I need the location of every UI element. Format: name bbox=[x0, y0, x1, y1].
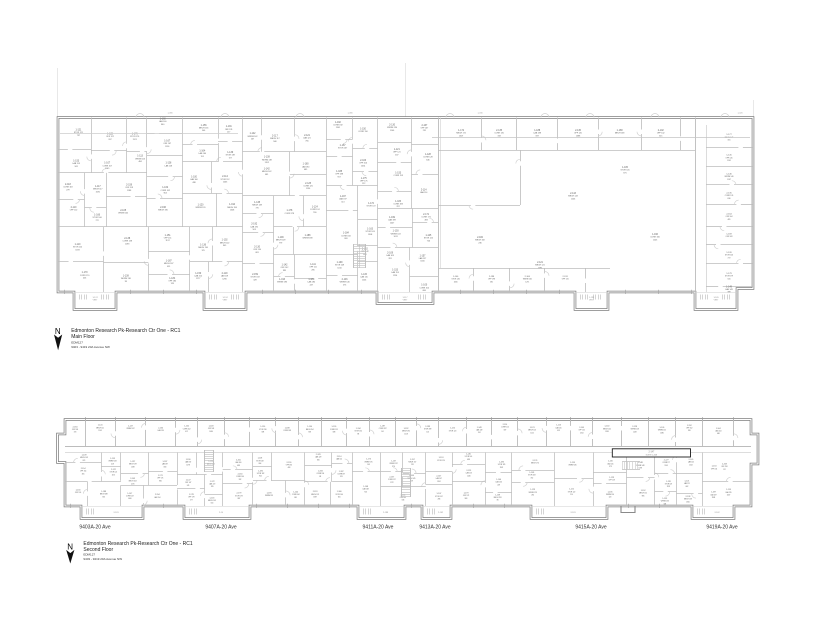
svg-text:1188: 1188 bbox=[712, 497, 716, 499]
svg-text:1388: 1388 bbox=[576, 135, 580, 137]
svg-text:1188: 1188 bbox=[127, 190, 131, 192]
svg-text:CORR 157: CORR 157 bbox=[388, 479, 396, 481]
svg-text:LAB 119: LAB 119 bbox=[221, 275, 228, 278]
svg-text:1-123: 1-123 bbox=[530, 427, 535, 429]
svg-text:2-179: 2-179 bbox=[237, 493, 242, 495]
svg-text:1-187: 1-187 bbox=[711, 492, 716, 494]
svg-text:688: 688 bbox=[237, 465, 240, 467]
svg-text:1-134: 1-134 bbox=[356, 428, 361, 430]
svg-text:727: 727 bbox=[229, 158, 232, 160]
svg-text:1-137: 1-137 bbox=[391, 461, 396, 463]
svg-text:CORR 197: CORR 197 bbox=[337, 473, 345, 475]
svg-text:1007: 1007 bbox=[727, 495, 731, 497]
svg-text:481: 481 bbox=[728, 219, 731, 221]
svg-text:MECH 121: MECH 121 bbox=[535, 265, 544, 267]
svg-text:294: 294 bbox=[531, 495, 534, 497]
svg-text:1202: 1202 bbox=[265, 162, 269, 164]
svg-text:2-162: 2-162 bbox=[714, 512, 720, 514]
svg-text:285: 285 bbox=[311, 270, 314, 272]
svg-text:1192: 1192 bbox=[667, 486, 671, 488]
svg-text:LAB 100: LAB 100 bbox=[190, 178, 197, 181]
svg-text:2-181: 2-181 bbox=[113, 512, 119, 514]
svg-text:MECH 187: MECH 187 bbox=[164, 263, 173, 265]
svg-text:OFF 198: OFF 198 bbox=[488, 279, 495, 281]
svg-text:MECH 141: MECH 141 bbox=[96, 427, 104, 429]
svg-text:STOR 122: STOR 122 bbox=[110, 472, 118, 474]
svg-text:1-118: 1-118 bbox=[258, 458, 263, 460]
svg-text:1-140: 1-140 bbox=[466, 454, 471, 456]
svg-text:116: 116 bbox=[426, 431, 429, 433]
svg-text:568: 568 bbox=[273, 141, 276, 143]
svg-text:STOR 130: STOR 130 bbox=[259, 429, 267, 431]
svg-text:662: 662 bbox=[686, 486, 689, 488]
svg-text:EDM127: EDM127 bbox=[71, 341, 83, 345]
svg-text:88: 88 bbox=[357, 433, 359, 435]
svg-text:MECH 138: MECH 138 bbox=[252, 205, 261, 207]
svg-text:363: 363 bbox=[344, 238, 347, 240]
svg-text:646: 646 bbox=[426, 159, 429, 161]
svg-text:1-140: 1-140 bbox=[605, 426, 610, 428]
svg-text:STOR 163: STOR 163 bbox=[366, 231, 375, 233]
svg-text:1-124: 1-124 bbox=[439, 457, 444, 459]
svg-text:780: 780 bbox=[313, 212, 316, 214]
svg-text:453: 453 bbox=[557, 430, 560, 432]
svg-text:913: 913 bbox=[102, 496, 105, 498]
svg-text:MECH 182: MECH 182 bbox=[475, 240, 484, 242]
svg-text:LAB 115: LAB 115 bbox=[360, 276, 367, 279]
svg-text:690: 690 bbox=[164, 466, 167, 468]
svg-text:1-190: 1-190 bbox=[186, 459, 191, 461]
svg-text:1-160: 1-160 bbox=[337, 491, 342, 493]
svg-text:942: 942 bbox=[259, 476, 262, 478]
svg-text:1172: 1172 bbox=[112, 474, 116, 476]
svg-text:141: 141 bbox=[381, 431, 384, 433]
svg-text:1166: 1166 bbox=[420, 261, 424, 263]
svg-text:2-147: 2-147 bbox=[128, 425, 133, 427]
svg-text:STOR 109: STOR 109 bbox=[528, 475, 536, 477]
svg-text:1-147: 1-147 bbox=[186, 480, 191, 482]
svg-text:1-193: 1-193 bbox=[267, 492, 272, 494]
svg-text:CORR 194: CORR 194 bbox=[316, 473, 324, 475]
svg-text:STOR 167: STOR 167 bbox=[338, 148, 347, 150]
svg-text:1-141: 1-141 bbox=[98, 425, 103, 427]
svg-text:1-179: 1-179 bbox=[189, 494, 194, 496]
svg-text:2-147: 2-147 bbox=[648, 451, 655, 453]
svg-text:9413A-20 Ave: 9413A-20 Ave bbox=[419, 524, 451, 530]
svg-text:OFF 145: OFF 145 bbox=[726, 157, 733, 159]
svg-text:MECH 159: MECH 159 bbox=[494, 497, 502, 499]
svg-text:OFF 190: OFF 190 bbox=[286, 464, 292, 466]
svg-text:1-135: 1-135 bbox=[570, 462, 575, 464]
svg-text:CORR 153: CORR 153 bbox=[393, 175, 402, 177]
svg-text:CORR 192: CORR 192 bbox=[333, 124, 342, 126]
svg-text:1063: 1063 bbox=[223, 182, 227, 184]
svg-text:995: 995 bbox=[283, 270, 286, 272]
svg-text:MECH 157: MECH 157 bbox=[409, 461, 417, 463]
svg-text:1-197: 1-197 bbox=[339, 471, 344, 473]
svg-text:2-130: 2-130 bbox=[158, 427, 163, 429]
svg-text:1-106: 1-106 bbox=[496, 479, 501, 481]
svg-text:2-162: 2-162 bbox=[438, 512, 444, 514]
svg-text:LAB 180: LAB 180 bbox=[308, 281, 315, 284]
svg-text:OFF 147: OFF 147 bbox=[185, 482, 191, 484]
svg-text:2-122: 2-122 bbox=[111, 469, 116, 471]
svg-text:LAB 180: LAB 180 bbox=[302, 165, 309, 168]
svg-text:OFF 106: OFF 106 bbox=[359, 163, 367, 165]
svg-text:917: 917 bbox=[337, 177, 340, 179]
svg-text:LAB 109: LAB 109 bbox=[386, 254, 393, 257]
svg-text:373: 373 bbox=[609, 466, 612, 468]
svg-text:EDM127: EDM127 bbox=[83, 552, 95, 556]
svg-text:2-145: 2-145 bbox=[689, 459, 694, 461]
svg-text:926: 926 bbox=[317, 460, 320, 462]
svg-text:STOR 176: STOR 176 bbox=[130, 136, 139, 138]
svg-text:1349: 1349 bbox=[605, 431, 609, 433]
svg-text:OFF 121: OFF 121 bbox=[393, 152, 401, 154]
svg-text:1300: 1300 bbox=[686, 501, 690, 503]
svg-text:2-100: 2-100 bbox=[236, 460, 241, 462]
svg-text:976: 976 bbox=[392, 466, 395, 468]
svg-text:1137: 1137 bbox=[166, 240, 170, 242]
svg-text:772: 772 bbox=[95, 220, 98, 222]
svg-text:MECH 117: MECH 117 bbox=[93, 189, 102, 191]
svg-text:OFF 167: OFF 167 bbox=[421, 127, 429, 129]
svg-text:318: 318 bbox=[497, 135, 500, 137]
svg-text:OFF 167: OFF 167 bbox=[163, 143, 171, 145]
svg-text:CORR 124: CORR 124 bbox=[310, 209, 320, 211]
svg-text:315: 315 bbox=[659, 135, 662, 137]
svg-text:1166: 1166 bbox=[454, 281, 458, 283]
svg-text:1290: 1290 bbox=[222, 278, 226, 280]
svg-text:LAB 121: LAB 121 bbox=[303, 137, 310, 140]
svg-text:CORR 114: CORR 114 bbox=[501, 427, 509, 429]
svg-text:1-185: 1-185 bbox=[499, 462, 504, 464]
svg-text:1198: 1198 bbox=[131, 466, 135, 468]
svg-text:MECH 123: MECH 123 bbox=[528, 430, 536, 432]
svg-text:681: 681 bbox=[255, 252, 258, 254]
svg-text:LAB 199: LAB 199 bbox=[388, 219, 395, 222]
svg-text:WKRM 120: WKRM 120 bbox=[196, 207, 206, 209]
svg-text:OFF 110: OFF 110 bbox=[70, 209, 78, 211]
svg-text:1011: 1011 bbox=[394, 236, 398, 238]
svg-text:1-133: 1-133 bbox=[110, 458, 115, 460]
svg-text:2-105: 2-105 bbox=[579, 427, 584, 429]
svg-text:103: 103 bbox=[367, 464, 370, 466]
svg-text:1091: 1091 bbox=[96, 192, 100, 194]
svg-text:1-130: 1-130 bbox=[260, 426, 265, 428]
svg-text:1145: 1145 bbox=[98, 430, 102, 432]
svg-text:585: 585 bbox=[211, 486, 214, 488]
svg-text:CORR 138: CORR 138 bbox=[122, 241, 131, 243]
svg-text:503: 503 bbox=[253, 229, 256, 231]
svg-text:OFF 129: OFF 129 bbox=[609, 480, 615, 482]
svg-text:MECH 117: MECH 117 bbox=[270, 138, 279, 140]
svg-text:1-187: 1-187 bbox=[380, 426, 385, 428]
svg-text:MECH 138: MECH 138 bbox=[684, 499, 692, 501]
svg-text:498: 498 bbox=[192, 182, 195, 184]
svg-text:1-109: 1-109 bbox=[529, 472, 534, 474]
svg-text:WKRM 105: WKRM 105 bbox=[658, 430, 666, 432]
svg-text:STOR 107: STOR 107 bbox=[435, 496, 443, 498]
svg-text:536: 536 bbox=[402, 500, 405, 502]
svg-text:651: 651 bbox=[167, 266, 170, 268]
svg-text:LAB 192: LAB 192 bbox=[250, 225, 257, 228]
svg-text:WKRM 146: WKRM 146 bbox=[725, 176, 734, 178]
svg-text:1206: 1206 bbox=[571, 198, 575, 200]
svg-text:291: 291 bbox=[411, 464, 414, 466]
svg-text:CORR 178: CORR 178 bbox=[285, 213, 294, 215]
svg-text:STOR 159: STOR 159 bbox=[250, 277, 259, 279]
svg-text:770: 770 bbox=[255, 207, 258, 209]
svg-text:281: 281 bbox=[388, 258, 391, 260]
svg-text:STOR 185: STOR 185 bbox=[498, 464, 506, 466]
svg-text:LAB 164: LAB 164 bbox=[199, 152, 207, 155]
svg-text:2-190: 2-190 bbox=[287, 462, 292, 464]
svg-text:CORR 170: CORR 170 bbox=[80, 275, 89, 277]
svg-text:N: N bbox=[67, 542, 73, 551]
svg-text:MECH 194: MECH 194 bbox=[227, 207, 237, 209]
svg-text:2-147: 2-147 bbox=[436, 475, 441, 477]
svg-text:2-103: 2-103 bbox=[130, 478, 135, 480]
svg-text:CORR 160: CORR 160 bbox=[236, 476, 244, 478]
svg-text:MECH 119: MECH 119 bbox=[311, 494, 319, 496]
svg-text:OFF 130: OFF 130 bbox=[75, 492, 81, 494]
svg-text:WKRM 193: WKRM 193 bbox=[277, 282, 287, 284]
svg-text:OFF 169: OFF 169 bbox=[726, 236, 733, 238]
svg-text:OFF 179: OFF 179 bbox=[463, 495, 469, 497]
svg-text:587: 587 bbox=[504, 430, 507, 432]
svg-text:WKRM 188: WKRM 188 bbox=[303, 238, 313, 240]
svg-text:1167: 1167 bbox=[727, 179, 731, 181]
svg-text:553: 553 bbox=[211, 503, 214, 505]
svg-text:OFF 158: OFF 158 bbox=[721, 466, 727, 468]
svg-text:120: 120 bbox=[609, 497, 612, 499]
svg-text:1093: 1093 bbox=[125, 244, 129, 246]
svg-text:2-128: 2-128 bbox=[632, 426, 637, 428]
svg-text:1-136: 1-136 bbox=[608, 491, 613, 493]
svg-text:740: 740 bbox=[530, 477, 533, 479]
svg-text:STOR 119: STOR 119 bbox=[665, 483, 672, 485]
svg-text:CORR 171: CORR 171 bbox=[421, 217, 430, 219]
svg-text:2-123: 2-123 bbox=[466, 470, 471, 472]
svg-text:969: 969 bbox=[465, 498, 468, 500]
svg-text:1314: 1314 bbox=[580, 433, 584, 435]
svg-text:222: 222 bbox=[362, 183, 365, 185]
svg-text:LAB 149: LAB 149 bbox=[725, 288, 732, 291]
svg-text:1047: 1047 bbox=[390, 223, 394, 225]
svg-text:493: 493 bbox=[424, 220, 427, 222]
svg-text:746: 746 bbox=[364, 491, 367, 493]
svg-text:STOR 182: STOR 182 bbox=[257, 473, 265, 475]
svg-text:1136: 1136 bbox=[165, 146, 169, 148]
svg-text:STOR 166: STOR 166 bbox=[93, 217, 102, 219]
svg-text:1-020: 1-020 bbox=[737, 113, 743, 115]
svg-text:804: 804 bbox=[259, 463, 262, 465]
svg-text:1-148: 1-148 bbox=[638, 462, 643, 464]
svg-text:MECH 142: MECH 142 bbox=[262, 171, 271, 173]
svg-text:CORR 144: CORR 144 bbox=[292, 494, 300, 496]
svg-text:779: 779 bbox=[279, 242, 282, 244]
svg-text:1240: 1240 bbox=[467, 475, 471, 477]
svg-text:9411A-20 Ave: 9411A-20 Ave bbox=[363, 524, 394, 530]
svg-text:CORR 100: CORR 100 bbox=[419, 287, 428, 289]
svg-text:99: 99 bbox=[125, 281, 127, 283]
svg-text:1078: 1078 bbox=[186, 464, 190, 466]
svg-text:9415A-20 Ave: 9415A-20 Ave bbox=[575, 524, 607, 530]
svg-text:OFF 111: OFF 111 bbox=[309, 267, 316, 269]
svg-text:1-135: 1-135 bbox=[726, 489, 731, 491]
svg-text:2-129: 2-129 bbox=[316, 454, 321, 456]
svg-text:OFF 175: OFF 175 bbox=[360, 180, 368, 182]
svg-text:9419A-20 Ave: 9419A-20 Ave bbox=[706, 524, 738, 530]
svg-text:1-188: 1-188 bbox=[101, 491, 106, 493]
svg-text:STOR 160: STOR 160 bbox=[335, 494, 343, 496]
svg-text:LAB 197: LAB 197 bbox=[339, 198, 346, 201]
svg-text:MECH 156: MECH 156 bbox=[199, 127, 208, 129]
svg-text:1-134: 1-134 bbox=[712, 466, 717, 468]
svg-text:CORR 135: CORR 135 bbox=[725, 195, 734, 197]
svg-text:WKRM 138: WKRM 138 bbox=[262, 159, 272, 161]
svg-text:OFF 131: OFF 131 bbox=[562, 279, 569, 281]
svg-text:1-149: 1-149 bbox=[477, 427, 482, 429]
svg-text:1-194: 1-194 bbox=[318, 470, 323, 472]
svg-text:OFF 142: OFF 142 bbox=[281, 267, 289, 269]
svg-text:2-119: 2-119 bbox=[313, 491, 318, 493]
svg-text:1-109: 1-109 bbox=[82, 455, 87, 457]
svg-text:WKRM 136: WKRM 136 bbox=[606, 494, 614, 496]
svg-text:CORR 187: CORR 187 bbox=[379, 428, 387, 430]
svg-text:772: 772 bbox=[728, 257, 731, 259]
svg-text:447: 447 bbox=[310, 285, 313, 287]
svg-text:1243: 1243 bbox=[653, 239, 657, 241]
svg-text:267: 267 bbox=[251, 139, 254, 141]
svg-text:OFF 102: OFF 102 bbox=[657, 133, 665, 135]
svg-text:516: 516 bbox=[728, 278, 731, 280]
svg-text:STOR 146: STOR 146 bbox=[451, 279, 459, 281]
svg-text:STOR 139: STOR 139 bbox=[226, 155, 235, 157]
svg-text:LAB 150: LAB 150 bbox=[194, 274, 201, 277]
svg-text:1106: 1106 bbox=[390, 130, 394, 132]
svg-text:113: 113 bbox=[341, 201, 344, 203]
svg-text:CORR 118: CORR 118 bbox=[63, 187, 72, 189]
svg-text:1270: 1270 bbox=[131, 483, 135, 485]
svg-text:1-107: 1-107 bbox=[437, 493, 442, 495]
svg-text:1-119: 1-119 bbox=[666, 481, 671, 483]
svg-text:CORR 102: CORR 102 bbox=[183, 428, 191, 430]
svg-text:1348: 1348 bbox=[230, 210, 234, 212]
svg-text:686: 686 bbox=[423, 290, 426, 292]
svg-text:1246: 1246 bbox=[362, 280, 366, 282]
svg-text:STOR 122: STOR 122 bbox=[568, 491, 576, 493]
svg-text:313: 313 bbox=[340, 476, 343, 478]
svg-text:1172: 1172 bbox=[390, 482, 394, 484]
svg-text:688: 688 bbox=[467, 459, 470, 461]
svg-text:MECH 103: MECH 103 bbox=[129, 481, 137, 483]
svg-text:1136: 1136 bbox=[306, 188, 310, 190]
svg-text:CORR 128: CORR 128 bbox=[423, 157, 432, 159]
svg-text:1-188: 1-188 bbox=[285, 428, 290, 430]
svg-text:LAB 153: LAB 153 bbox=[391, 271, 398, 274]
svg-text:581: 581 bbox=[490, 281, 493, 283]
svg-text:308: 308 bbox=[663, 503, 666, 505]
svg-text:CORR 184: CORR 184 bbox=[341, 235, 351, 237]
svg-text:WKRM 113: WKRM 113 bbox=[135, 158, 145, 160]
svg-text:WKRM 147: WKRM 147 bbox=[126, 428, 134, 430]
svg-text:OFF 164: OFF 164 bbox=[726, 216, 733, 218]
svg-text:412: 412 bbox=[185, 431, 188, 433]
svg-text:OFF 151: OFF 151 bbox=[164, 237, 172, 239]
svg-text:LAB 128: LAB 128 bbox=[165, 164, 172, 167]
svg-text:MECH 197: MECH 197 bbox=[129, 464, 137, 466]
svg-text:CORR 125: CORR 125 bbox=[303, 185, 312, 187]
svg-text:1-154: 1-154 bbox=[307, 426, 312, 428]
svg-text:OFF 152: OFF 152 bbox=[686, 427, 692, 429]
svg-text:1387: 1387 bbox=[313, 497, 317, 499]
svg-text:2-176: 2-176 bbox=[533, 460, 538, 462]
svg-text:577: 577 bbox=[190, 500, 193, 502]
svg-text:WKRM 130: WKRM 130 bbox=[387, 127, 397, 129]
svg-text:588: 588 bbox=[333, 432, 336, 434]
svg-text:524: 524 bbox=[478, 432, 481, 434]
svg-text:9407A-20 Ave: 9407A-20 Ave bbox=[205, 524, 237, 530]
svg-text:MECH 109: MECH 109 bbox=[276, 240, 285, 242]
svg-text:LAB 188: LAB 188 bbox=[533, 132, 540, 135]
svg-text:874: 874 bbox=[83, 460, 86, 462]
svg-text:STOR 112: STOR 112 bbox=[221, 179, 230, 181]
svg-text:1308: 1308 bbox=[368, 234, 372, 236]
svg-text:1-143: 1-143 bbox=[210, 497, 215, 499]
svg-text:1-171: 1-171 bbox=[158, 475, 163, 477]
svg-text:STOR 172: STOR 172 bbox=[366, 205, 375, 207]
svg-text:1202: 1202 bbox=[689, 464, 693, 466]
svg-text:1-133: 1-133 bbox=[662, 498, 667, 500]
svg-text:1122: 1122 bbox=[530, 433, 534, 435]
svg-text:2-160: 2-160 bbox=[238, 473, 243, 475]
svg-text:1218: 1218 bbox=[404, 433, 408, 435]
svg-text:86: 86 bbox=[497, 500, 499, 502]
svg-text:1-122: 1-122 bbox=[569, 489, 574, 491]
svg-text:1-121: 1-121 bbox=[685, 481, 690, 483]
svg-text:209: 209 bbox=[497, 484, 500, 486]
svg-text:9403 - 9419 20A Avenue NW: 9403 - 9419 20A Avenue NW bbox=[71, 345, 110, 349]
svg-text:1-172: 1-172 bbox=[210, 481, 215, 483]
svg-text:1-192: 1-192 bbox=[404, 428, 409, 430]
svg-text:737: 737 bbox=[77, 135, 80, 137]
svg-text:STOR 134: STOR 134 bbox=[354, 431, 362, 433]
svg-text:112: 112 bbox=[723, 469, 726, 471]
svg-text:840: 840 bbox=[161, 124, 164, 126]
svg-text:1-155: 1-155 bbox=[332, 426, 337, 428]
svg-text:418: 418 bbox=[111, 464, 114, 466]
svg-text:WKRM 142: WKRM 142 bbox=[248, 136, 258, 138]
svg-text:456: 456 bbox=[83, 278, 86, 280]
svg-text:1105: 1105 bbox=[664, 465, 668, 467]
svg-text:1-130: 1-130 bbox=[76, 490, 81, 492]
svg-text:1193: 1193 bbox=[75, 250, 79, 252]
svg-text:OFF 159: OFF 159 bbox=[125, 187, 133, 189]
svg-text:OFF 165: OFF 165 bbox=[400, 497, 406, 499]
svg-text:LAB 157: LAB 157 bbox=[419, 257, 426, 260]
svg-text:2-154: 2-154 bbox=[81, 468, 86, 470]
svg-text:1341: 1341 bbox=[336, 127, 340, 129]
svg-text:OFF 154: OFF 154 bbox=[80, 471, 86, 473]
svg-text:1-152: 1-152 bbox=[641, 490, 646, 492]
svg-text:636: 636 bbox=[728, 198, 731, 200]
svg-text:STOR 179: STOR 179 bbox=[725, 276, 733, 278]
svg-text:LAB 114: LAB 114 bbox=[420, 191, 428, 194]
svg-text:OFF 191: OFF 191 bbox=[225, 129, 233, 131]
svg-text:1-175: 1-175 bbox=[366, 459, 371, 461]
